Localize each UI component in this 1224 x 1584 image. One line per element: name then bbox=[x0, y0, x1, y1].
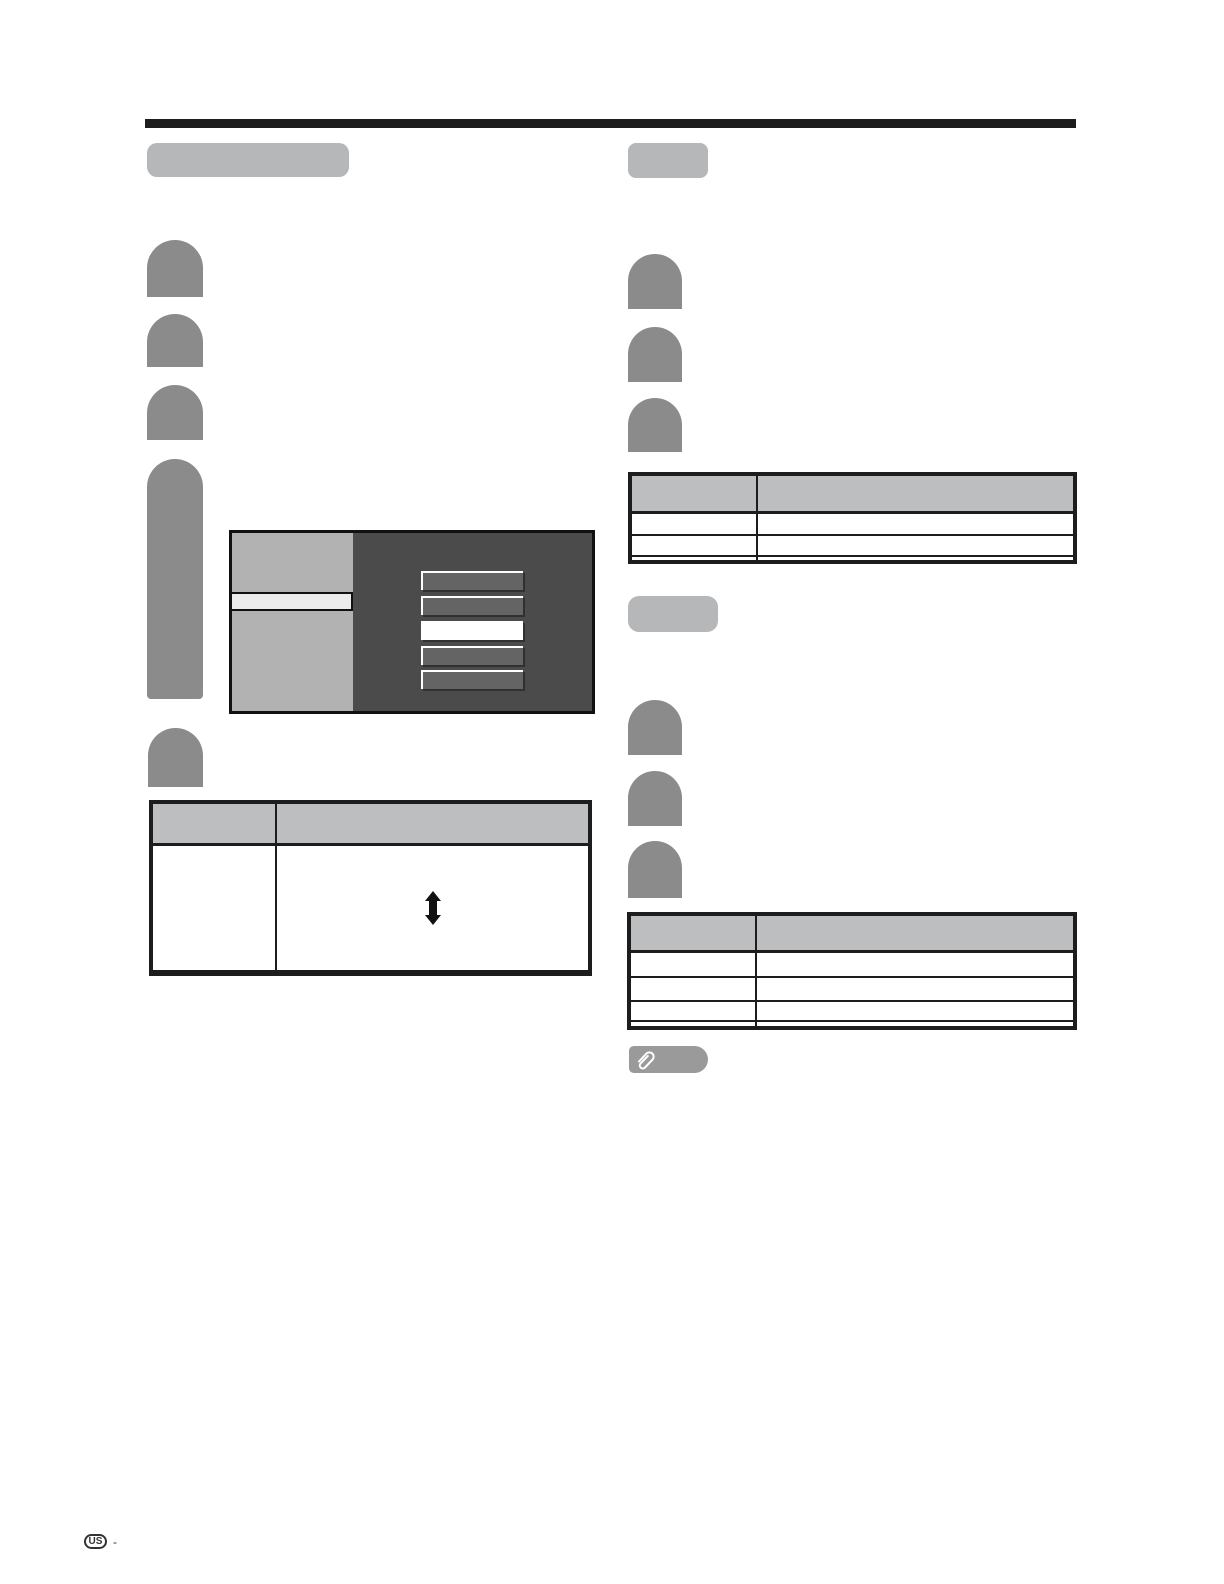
left-settings-table bbox=[149, 800, 592, 976]
note-label-pill bbox=[629, 1046, 708, 1073]
right-step-marker-2 bbox=[628, 327, 682, 382]
right-table-2-row-2 bbox=[631, 978, 1073, 1002]
up-down-arrow-icon bbox=[424, 891, 442, 925]
osd-menu-button-1 bbox=[421, 571, 523, 590]
right-step-marker-1 bbox=[628, 254, 682, 309]
right-step-marker-3 bbox=[628, 398, 682, 452]
osd-menu-button-2 bbox=[421, 596, 523, 615]
left-section-heading-pill bbox=[147, 143, 349, 177]
right-table-1-column-divider bbox=[756, 476, 758, 560]
step-marker-3 bbox=[147, 385, 203, 440]
right-table-2-row-1 bbox=[631, 953, 1073, 978]
right-step-marker-6 bbox=[628, 841, 682, 898]
right-step-marker-4 bbox=[628, 700, 682, 755]
right-table-1-row-1 bbox=[632, 514, 1073, 536]
left-table-value-cell bbox=[277, 846, 588, 970]
step-marker-2 bbox=[147, 314, 203, 367]
right-step-marker-5 bbox=[628, 771, 682, 826]
right-table-2-row-3 bbox=[631, 1002, 1073, 1022]
osd-sidebar-highlight-row bbox=[232, 592, 353, 611]
osd-menu-panel bbox=[353, 533, 592, 711]
left-table-body-row bbox=[153, 846, 588, 972]
top-divider-rule bbox=[145, 119, 1076, 128]
manual-page: US - bbox=[0, 0, 1224, 1584]
left-table-column-divider bbox=[275, 804, 277, 972]
right-table-1-header-row bbox=[632, 476, 1073, 514]
paperclip-icon bbox=[633, 1047, 659, 1073]
osd-menu-button-3-selected bbox=[421, 621, 523, 640]
left-table-header-row bbox=[153, 804, 588, 846]
right-settings-table-1 bbox=[628, 472, 1077, 564]
right-table-2-header-row bbox=[631, 916, 1073, 953]
osd-menu-sidebar bbox=[232, 533, 353, 711]
osd-menu-button-4 bbox=[421, 646, 523, 665]
osd-menu-button-5 bbox=[421, 670, 523, 689]
us-region-mark: US bbox=[84, 1534, 107, 1549]
footer-separator: - bbox=[113, 1536, 117, 1548]
page-footer: US - bbox=[84, 1534, 117, 1549]
right-table-1-row-2 bbox=[632, 536, 1073, 557]
right-section-heading-pill-2 bbox=[628, 596, 718, 632]
right-table-2-column-divider bbox=[755, 916, 757, 1026]
right-settings-table-2 bbox=[627, 912, 1077, 1030]
step-marker-4-tall bbox=[147, 459, 203, 699]
step-marker-1 bbox=[147, 240, 203, 297]
osd-menu-screenshot bbox=[229, 530, 595, 714]
right-section-heading-pill-1 bbox=[628, 143, 708, 178]
step-marker-5 bbox=[148, 728, 203, 787]
